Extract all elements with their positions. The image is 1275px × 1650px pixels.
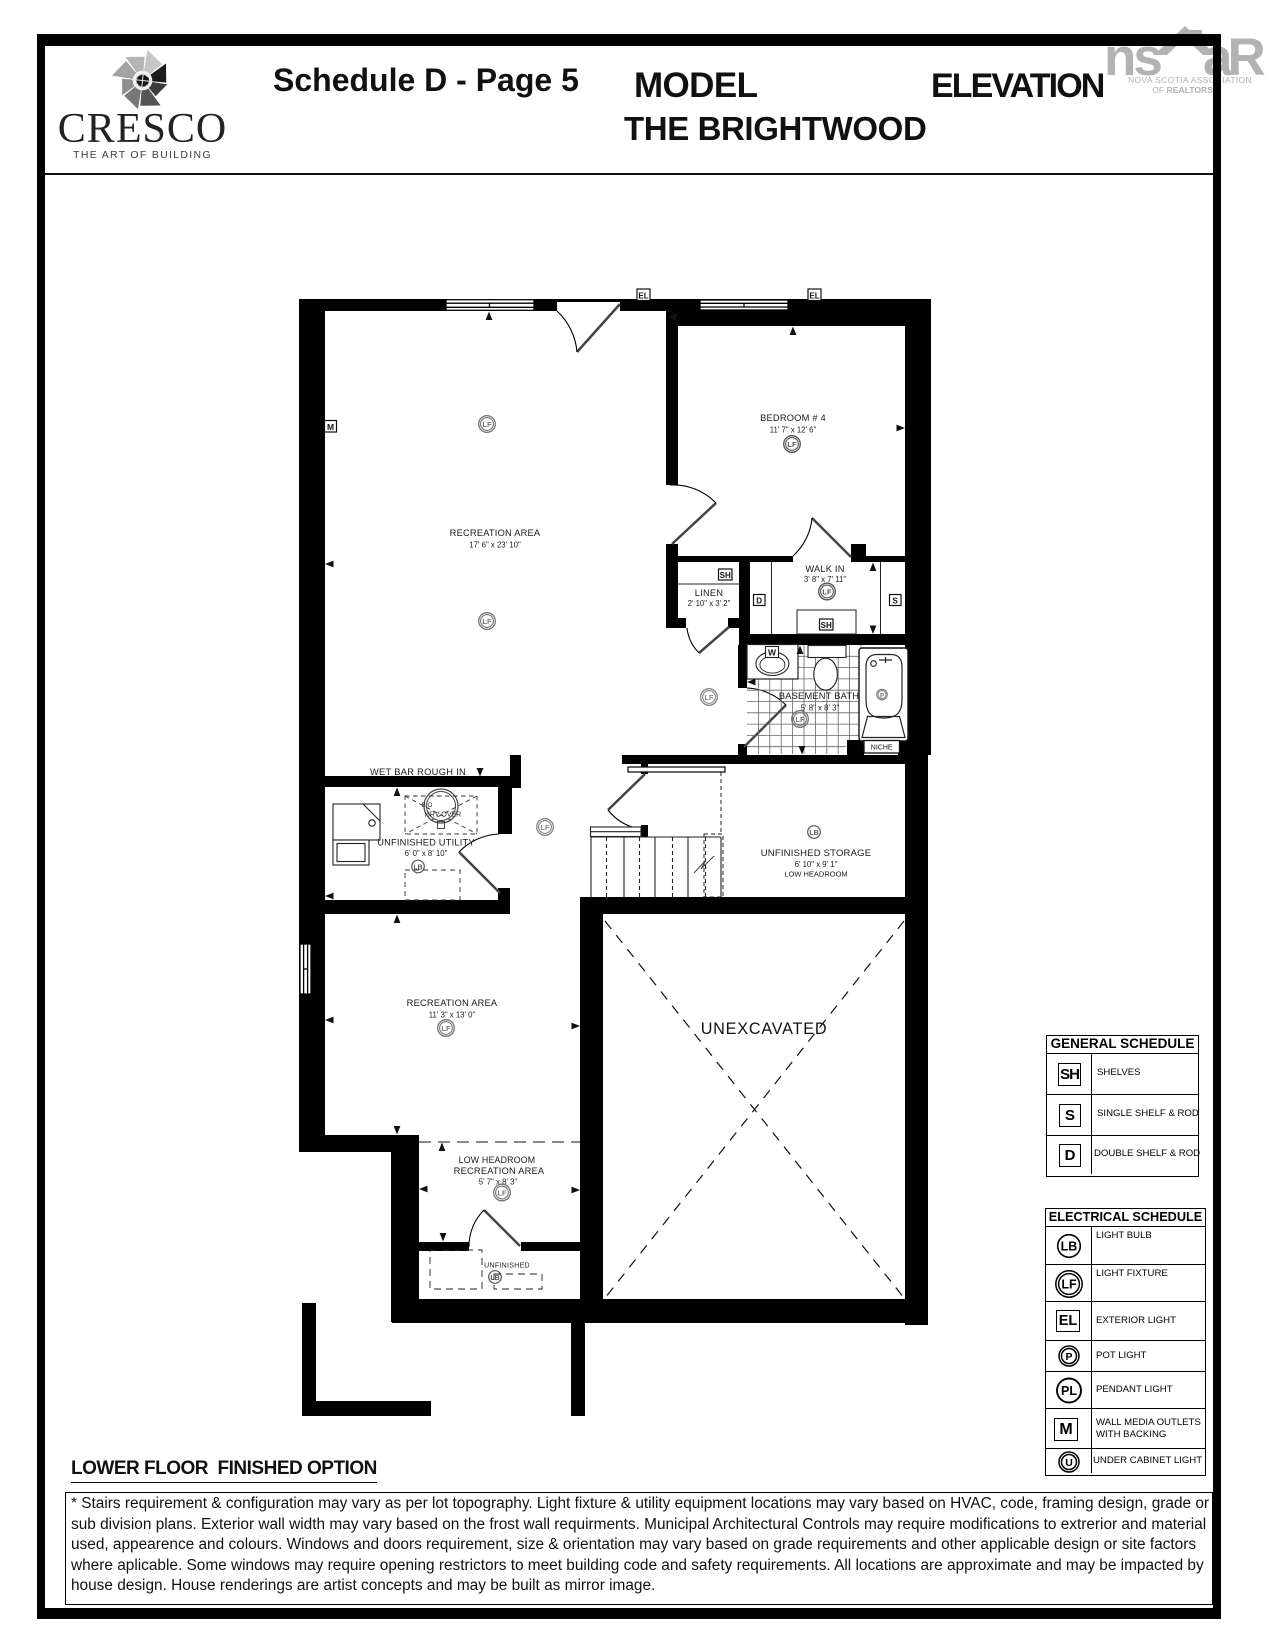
svg-text:11' 3" x 13' 0": 11' 3" x 13' 0" xyxy=(429,1011,476,1020)
svg-text:WALK IN: WALK IN xyxy=(805,564,844,574)
svg-text:LF: LF xyxy=(1061,1277,1077,1291)
svg-text:2' 10" x 3' 2": 2' 10" x 3' 2" xyxy=(688,599,731,608)
svg-text:BASEMENT BATH: BASEMENT BATH xyxy=(779,691,859,701)
svg-text:UNEXCAVATED: UNEXCAVATED xyxy=(701,1020,828,1038)
svg-text:SH: SH xyxy=(720,571,731,580)
svg-text:LF: LF xyxy=(795,715,805,724)
svg-text:M: M xyxy=(327,422,334,432)
svg-text:BEDROOM # 4: BEDROOM # 4 xyxy=(760,413,826,423)
svg-text:6' 0" x 8' 10": 6' 0" x 8' 10" xyxy=(405,849,448,858)
svg-text:11' 7" x 12' 6": 11' 7" x 12' 6" xyxy=(770,426,817,435)
svg-text:D: D xyxy=(756,597,762,606)
svg-text:WET BAR ROUGH IN: WET BAR ROUGH IN xyxy=(370,767,466,777)
svg-text:RECREATION AREA: RECREATION AREA xyxy=(450,528,541,538)
svg-text:LOW HEADROOM: LOW HEADROOM xyxy=(459,1155,536,1165)
svg-text:EL: EL xyxy=(809,292,819,301)
svg-text:LF: LF xyxy=(704,693,714,702)
svg-text:LB: LB xyxy=(1061,1240,1078,1254)
svg-text:LB: LB xyxy=(490,1275,499,1282)
svg-text:LF: LF xyxy=(787,440,797,449)
svg-text:B O: B O xyxy=(422,802,433,809)
svg-text:LOW HEADROOM: LOW HEADROOM xyxy=(784,870,847,879)
svg-text:LF: LF xyxy=(441,1024,451,1033)
svg-text:RECREATION AREA: RECREATION AREA xyxy=(454,1166,545,1176)
svg-text:6' 10" x 9' 1": 6' 10" x 9' 1" xyxy=(795,860,838,869)
svg-text:LB: LB xyxy=(809,830,818,837)
svg-text:LF: LF xyxy=(497,1188,507,1197)
svg-text:PL: PL xyxy=(1061,1384,1077,1398)
svg-text:SH: SH xyxy=(821,621,832,630)
svg-text:3' 8" x 7' 11": 3' 8" x 7' 11" xyxy=(804,575,846,584)
svg-text:P: P xyxy=(880,693,884,699)
svg-text:EL: EL xyxy=(638,292,648,301)
svg-text:5' 8" x 8' 3": 5' 8" x 8' 3" xyxy=(801,704,840,713)
svg-text:LINEN: LINEN xyxy=(695,588,723,598)
svg-text:17' 6" x 23' 10": 17' 6" x 23' 10" xyxy=(469,541,521,550)
svg-text:UNFINISHED STORAGE: UNFINISHED STORAGE xyxy=(761,848,872,859)
svg-text:P: P xyxy=(1065,1351,1072,1363)
svg-text:RECREATION AREA: RECREATION AREA xyxy=(407,998,498,1008)
svg-text:U: U xyxy=(1065,1457,1073,1469)
svg-text:W: W xyxy=(768,648,777,658)
svg-text:HRV OVER: HRV OVER xyxy=(425,812,461,819)
svg-text:NICHE: NICHE xyxy=(871,745,893,752)
svg-text:S: S xyxy=(893,597,899,606)
svg-text:LF: LF xyxy=(482,617,492,626)
svg-text:LF: LF xyxy=(540,823,550,832)
svg-text:UNFINISHED: UNFINISHED xyxy=(484,1263,530,1270)
svg-text:LF: LF xyxy=(482,420,492,429)
svg-text:UNFINISHED UTILITY: UNFINISHED UTILITY xyxy=(377,838,475,848)
svg-text:LF: LF xyxy=(822,587,832,596)
